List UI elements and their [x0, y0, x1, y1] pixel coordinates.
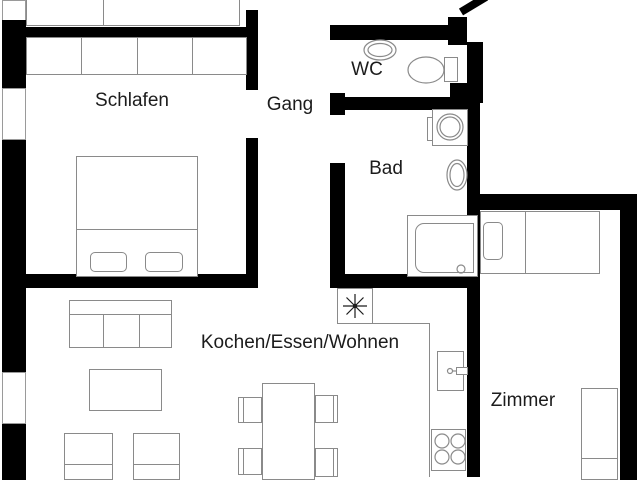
shower-drain-icon	[457, 265, 465, 273]
floor-plan: Schlafen Gang WC Bad Kochen/Essen/Wohnen…	[0, 0, 640, 480]
faucet-dot-icon	[448, 369, 453, 374]
room-label-zimmer: Zimmer	[491, 390, 555, 412]
room-label-wohnen: Kochen/Essen/Wohnen	[201, 332, 399, 354]
entrance-door-icon	[461, 0, 486, 12]
ceiling-light-icon	[343, 294, 367, 318]
toilet-icon	[408, 57, 444, 83]
room-label-schlafen: Schlafen	[95, 90, 169, 112]
room-label-wc: WC	[351, 59, 383, 81]
room-label-gang: Gang	[267, 94, 313, 116]
room-label-bad: Bad	[369, 158, 403, 180]
stove-burners-icon	[435, 434, 465, 464]
washing-machine-door-icon	[437, 114, 463, 140]
